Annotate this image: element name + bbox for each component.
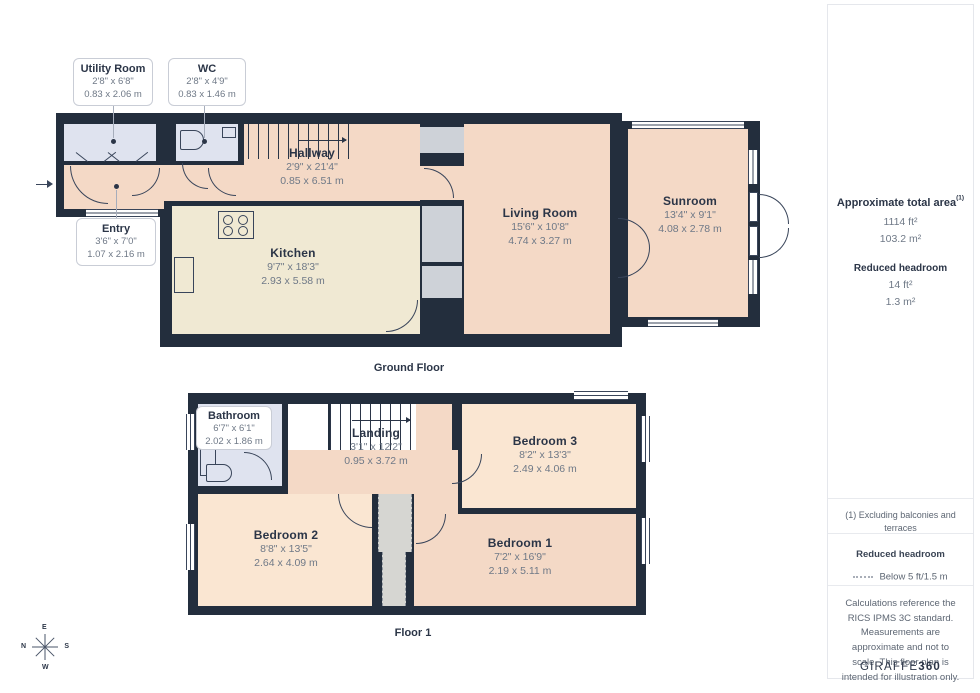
reduced-headroom-area xyxy=(382,552,406,606)
room-dims-metric: 0.95 x 3.72 m xyxy=(344,455,408,468)
legend-block: Reduced headroom Below 5 ft/1.5 m xyxy=(828,549,973,586)
room-label-landing: Landing 3'1" x 12'2" 0.95 x 3.72 m xyxy=(344,426,408,468)
total-area-label: Approximate total area xyxy=(837,197,956,209)
callout-wc: WC 2'8" x 4'9" 0.83 x 1.46 m xyxy=(168,58,246,106)
leader-dot xyxy=(114,184,119,189)
room-dims-imperial: 3'1" x 12'2" xyxy=(344,441,408,454)
brand-name: GIRAFFE xyxy=(860,661,918,673)
stairs-arrow-icon xyxy=(298,140,346,141)
window xyxy=(648,319,718,327)
room-landing-floor xyxy=(416,404,452,450)
room-dims-imperial: 2'8" x 6'8" xyxy=(78,76,148,88)
reduced-headroom-area xyxy=(378,494,412,552)
room-dims-metric: 2.02 x 1.86 m xyxy=(199,436,269,448)
french-door-leaf xyxy=(749,226,758,256)
room-dims-imperial: 13'4" x 9'1" xyxy=(658,209,722,222)
room-name: Bedroom 3 xyxy=(513,434,577,448)
room-dims-imperial: 2'8" x 4'9" xyxy=(173,76,241,88)
french-door-leaf xyxy=(749,192,758,222)
room-label-hallway: Hallway 2'9" x 21'4" 0.85 x 6.51 m xyxy=(280,146,344,188)
room-name: Utility Room xyxy=(78,63,148,76)
room-name: WC xyxy=(173,63,241,76)
sink-icon xyxy=(174,257,194,293)
window xyxy=(186,524,195,570)
room-name: Kitchen xyxy=(261,246,325,260)
room-label-bedroom2: Bedroom 2 8'8" x 13'5" 2.64 x 4.09 m xyxy=(254,528,318,570)
room-name: Bedroom 1 xyxy=(488,536,552,550)
room-dims-imperial: 6'7" x 6'1" xyxy=(199,423,269,435)
room-dims-imperial: 7'2" x 16'9" xyxy=(488,551,552,564)
compass-left-label: N xyxy=(21,643,26,650)
room-dims-metric: 2.19 x 5.11 m xyxy=(488,565,552,578)
room-name: Bathroom xyxy=(199,410,269,423)
brand-suffix: 360 xyxy=(918,661,941,673)
divider xyxy=(828,533,973,534)
compass-icon: E N S W xyxy=(24,626,66,668)
room-name: Sunroom xyxy=(658,194,722,208)
room-label-sunroom: Sunroom 13'4" x 9'1" 4.08 x 2.78 m xyxy=(658,194,722,236)
doorway-floor xyxy=(414,494,458,514)
callout-bathroom: Bathroom 6'7" x 6'1" 2.02 x 1.86 m xyxy=(196,406,272,450)
info-sidebar: Approximate total area(1) 1114 ft² 103.2… xyxy=(827,4,974,679)
room-dims-imperial: 15'6" x 10'8" xyxy=(503,221,578,234)
room-name: Hallway xyxy=(280,146,344,160)
floorplan-canvas: Utility Room 2'8" x 6'8" 0.83 x 2.06 m W… xyxy=(0,0,980,693)
compass-right-label: S xyxy=(64,643,69,650)
total-area-ft: 1114 ft² xyxy=(828,216,973,228)
stove-icon xyxy=(218,211,254,239)
callout-utility-room: Utility Room 2'8" x 6'8" 0.83 x 2.06 m xyxy=(73,58,153,106)
ground-floor-title: Ground Floor xyxy=(374,362,444,374)
brand-logo: GIRAFFE360 xyxy=(828,657,973,675)
chimney-block xyxy=(420,127,464,153)
room-dims-imperial: 9'7" x 18'3" xyxy=(261,261,325,274)
room-label-bedroom3: Bedroom 3 8'2" x 13'3" 2.49 x 4.06 m xyxy=(513,434,577,476)
basin-icon xyxy=(222,127,236,138)
room-name: Bedroom 2 xyxy=(254,528,318,542)
divider xyxy=(828,498,973,499)
room-dims-metric: 1.07 x 2.16 m xyxy=(81,249,151,261)
room-name: Entry xyxy=(81,223,151,236)
window xyxy=(186,414,195,450)
door-arc xyxy=(759,228,789,258)
chimney-block xyxy=(422,206,462,262)
dotted-line-icon xyxy=(853,576,873,578)
reduced-headroom-ft: 14 ft² xyxy=(828,279,973,291)
window xyxy=(748,260,758,294)
room-name: Landing xyxy=(344,426,408,440)
cupboard-floor xyxy=(288,404,328,450)
leader-dot xyxy=(202,139,207,144)
window xyxy=(748,150,758,184)
total-area-m: 103.2 m² xyxy=(828,233,973,245)
compass-bottom-label: W xyxy=(42,664,49,671)
room-dims-metric: 2.64 x 4.09 m xyxy=(254,557,318,570)
toilet-icon xyxy=(180,130,204,150)
room-dims-imperial: 2'9" x 21'4" xyxy=(280,161,344,174)
room-dims-metric: 4.08 x 2.78 m xyxy=(658,223,722,236)
leader-line xyxy=(113,106,114,138)
room-dims-metric: 2.93 x 5.58 m xyxy=(261,275,325,288)
legend-value: Below 5 ft/1.5 m xyxy=(879,571,947,582)
window xyxy=(641,416,650,462)
entrance-arrow-icon xyxy=(36,184,47,185)
window xyxy=(641,518,650,564)
door-arc xyxy=(759,194,789,224)
room-dims-metric: 0.83 x 2.06 m xyxy=(78,89,148,101)
room-dims-metric: 4.74 x 3.27 m xyxy=(503,235,578,248)
divider xyxy=(828,585,973,586)
compass-top-label: E xyxy=(42,624,47,631)
room-label-living-room: Living Room 15'6" x 10'8" 4.74 x 3.27 m xyxy=(503,206,578,248)
room-dims-metric: 2.49 x 4.06 m xyxy=(513,463,577,476)
leader-line xyxy=(204,106,205,138)
room-dims-imperial: 3'6" x 7'0" xyxy=(81,236,151,248)
room-label-bedroom1: Bedroom 1 7'2" x 16'9" 2.19 x 5.11 m xyxy=(488,536,552,578)
callout-entry: Entry 3'6" x 7'0" 1.07 x 2.16 m xyxy=(76,218,156,266)
footnote-marker: (1) xyxy=(956,195,964,202)
toilet-icon xyxy=(206,464,232,482)
window xyxy=(574,391,628,400)
room-dims-imperial: 8'8" x 13'5" xyxy=(254,543,318,556)
footnote-text: (1) Excluding balconies and terraces xyxy=(828,509,973,534)
room-name: Living Room xyxy=(503,206,578,220)
reduced-headroom-m: 1.3 m² xyxy=(828,296,973,308)
total-area-block: Approximate total area(1) 1114 ft² 103.2… xyxy=(828,193,973,308)
chimney-block xyxy=(422,266,462,298)
window xyxy=(86,209,158,217)
leader-dot xyxy=(111,139,116,144)
leader-line xyxy=(116,190,117,218)
room-dims-metric: 0.85 x 6.51 m xyxy=(280,175,344,188)
reduced-headroom-label: Reduced headroom xyxy=(828,263,973,274)
entrance-arrow-icon xyxy=(47,180,53,188)
legend-title: Reduced headroom xyxy=(828,549,973,560)
room-dims-metric: 0.83 x 1.46 m xyxy=(173,89,241,101)
first-floor-title: Floor 1 xyxy=(395,627,432,639)
room-dims-imperial: 8'2" x 13'3" xyxy=(513,449,577,462)
window xyxy=(632,121,744,129)
room-label-kitchen: Kitchen 9'7" x 18'3" 2.93 x 5.58 m xyxy=(261,246,325,288)
stairs-arrow-icon xyxy=(352,420,410,421)
